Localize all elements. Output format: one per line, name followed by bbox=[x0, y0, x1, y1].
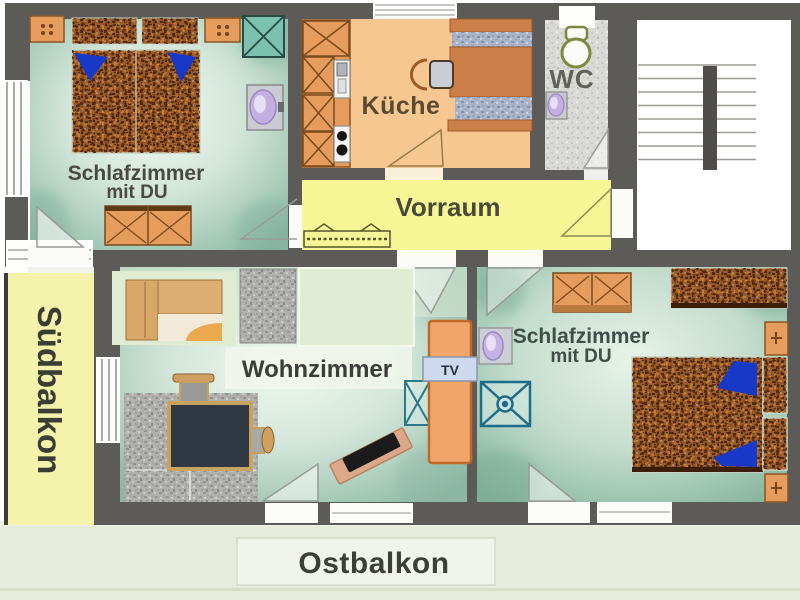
svg-text:mit DU: mit DU bbox=[550, 346, 611, 367]
svg-text:Wohnzimmer: Wohnzimmer bbox=[242, 356, 392, 383]
svg-text:Schlafzimmer: Schlafzimmer bbox=[513, 325, 650, 348]
svg-text:Ostbalkon: Ostbalkon bbox=[298, 547, 449, 580]
svg-text:mit DU: mit DU bbox=[106, 182, 167, 203]
svg-text:Südbalkon: Südbalkon bbox=[31, 306, 68, 475]
svg-text:WC: WC bbox=[549, 64, 594, 94]
svg-text:Vorraum: Vorraum bbox=[396, 192, 501, 222]
svg-text:TV: TV bbox=[441, 362, 460, 378]
svg-text:Küche: Küche bbox=[362, 92, 441, 120]
